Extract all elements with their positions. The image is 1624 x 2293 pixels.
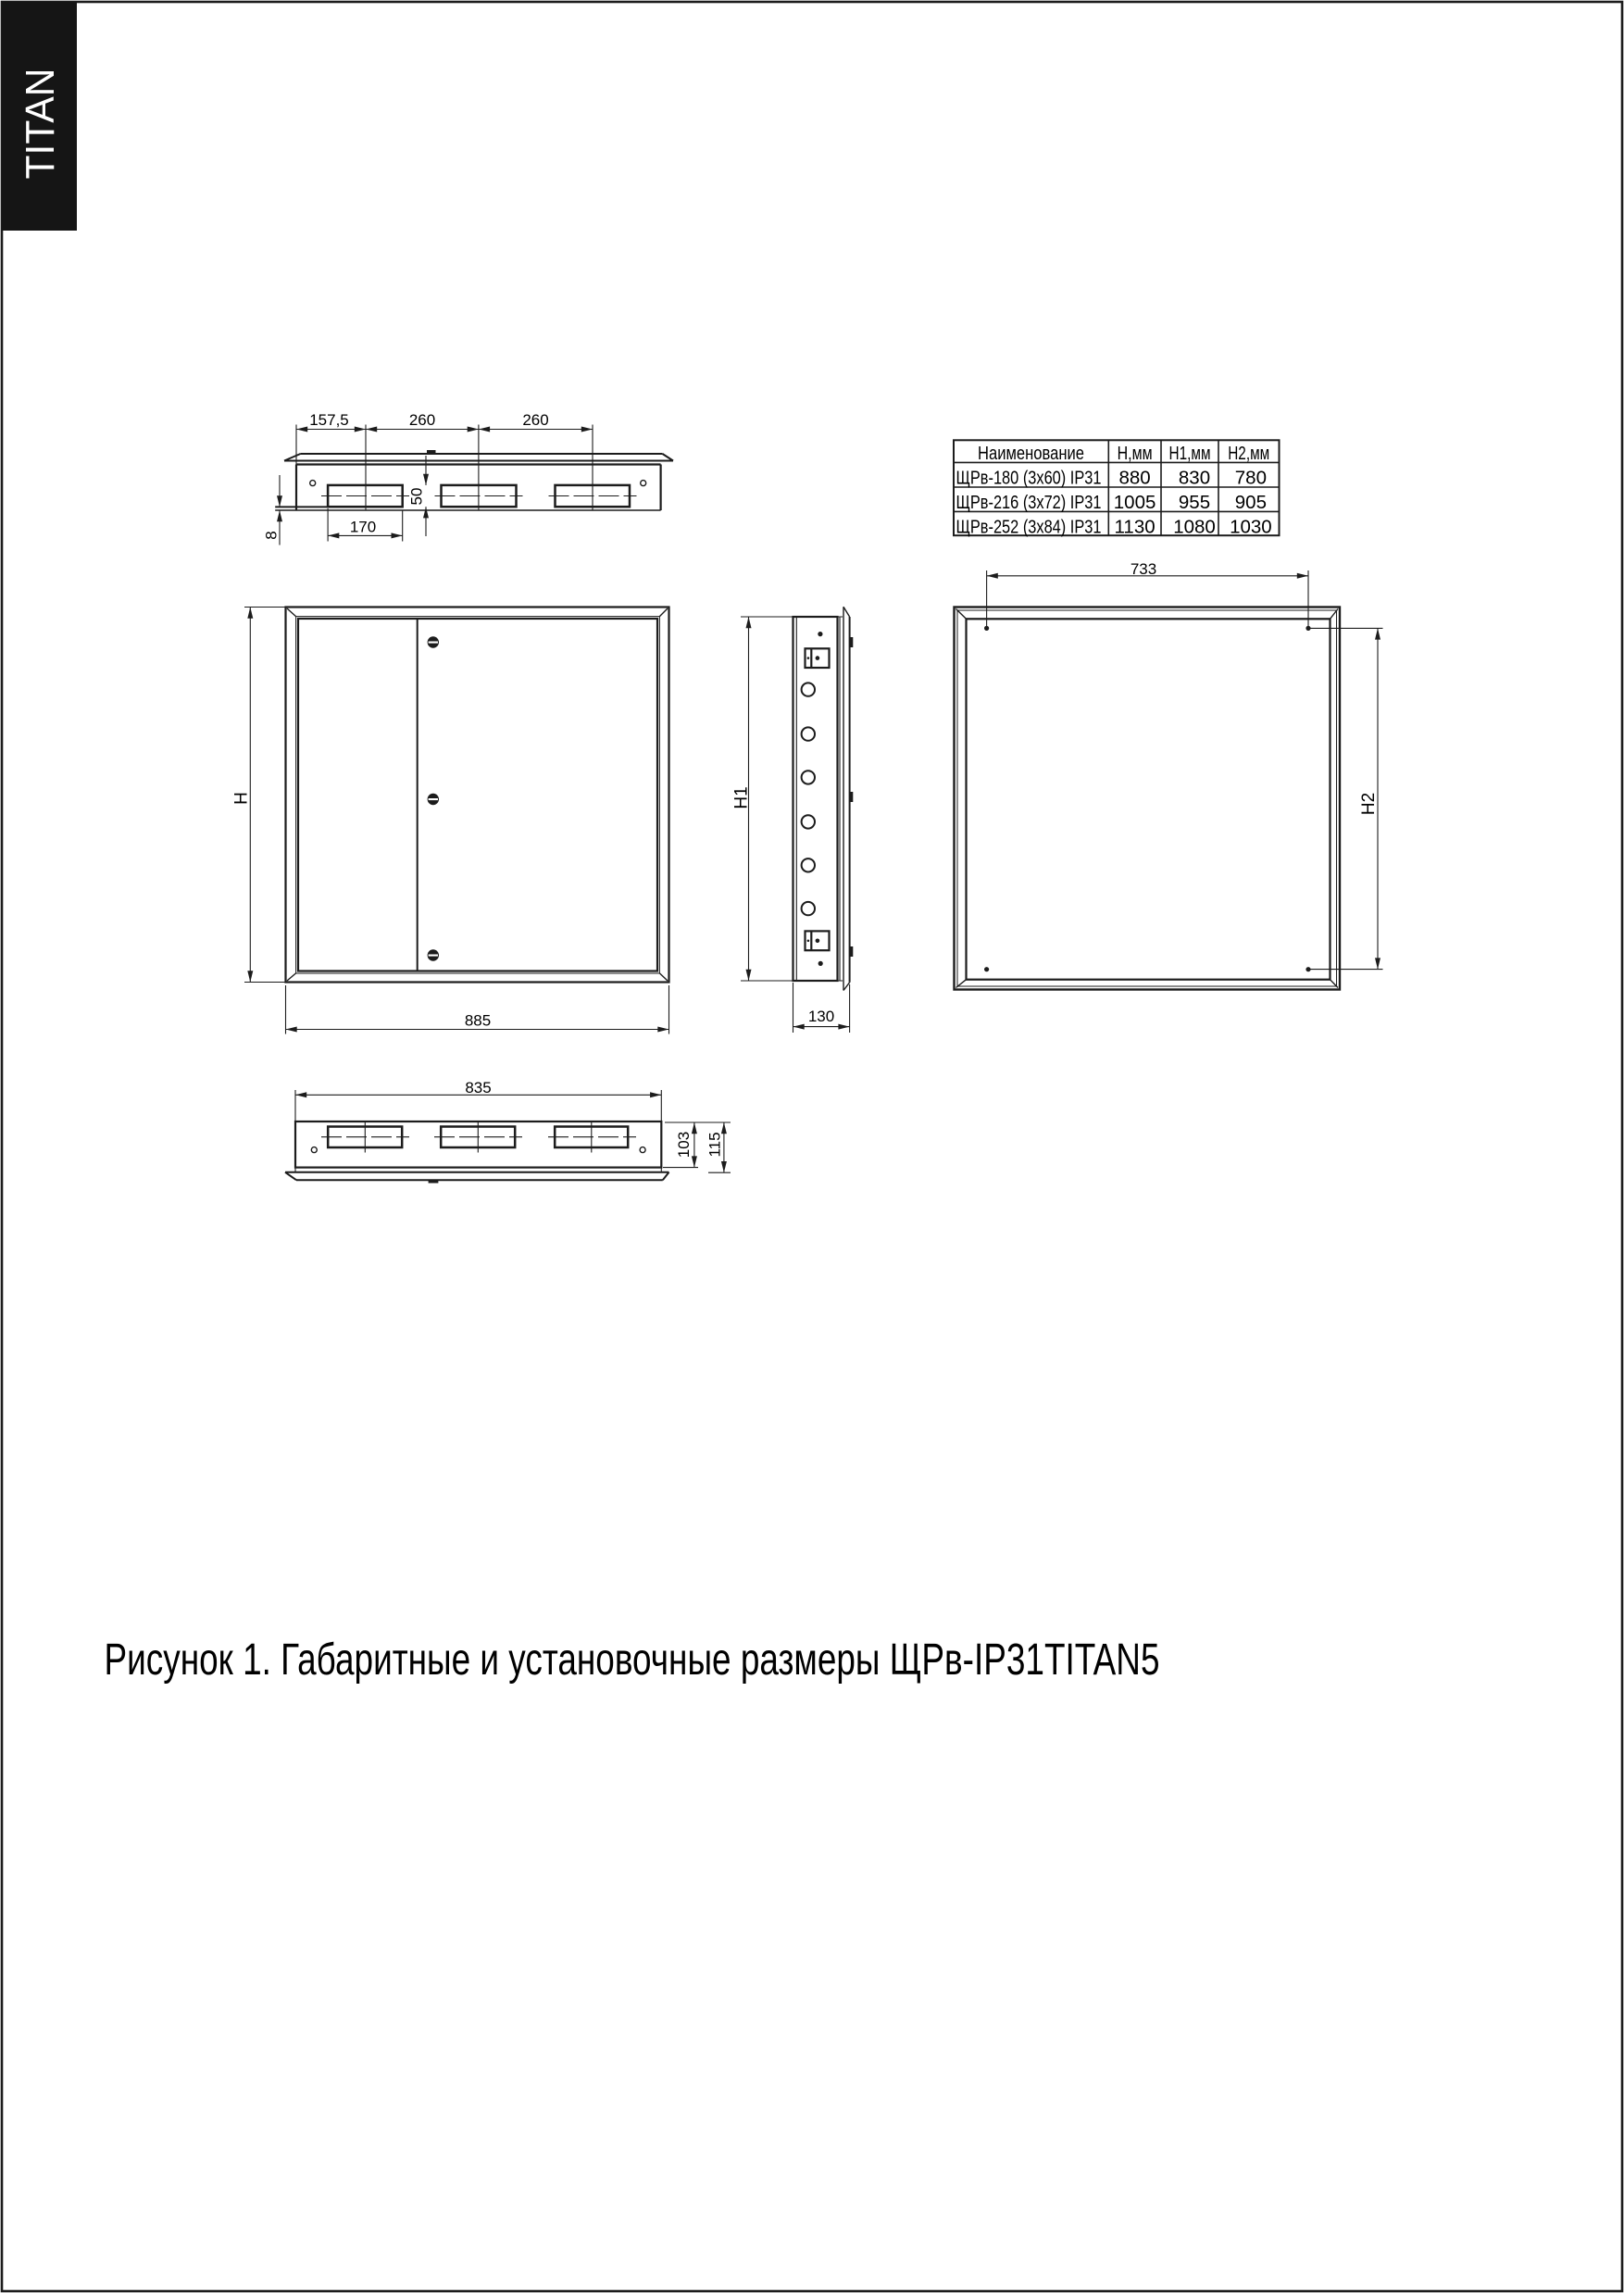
svg-text:830: 830 (1179, 468, 1210, 489)
svg-text:TITAN: TITAN (18, 69, 63, 180)
svg-text:H: H (232, 792, 252, 805)
svg-text:Н2,мм: Н2,мм (1228, 443, 1269, 464)
svg-text:H1: H1 (732, 786, 752, 808)
svg-text:ЩРв-180 (3х60) IP31: ЩРв-180 (3х60) IP31 (956, 468, 1102, 489)
svg-text:260: 260 (522, 411, 548, 429)
svg-text:780: 780 (1235, 468, 1267, 489)
svg-text:1005: 1005 (1114, 492, 1156, 513)
svg-text:1080: 1080 (1173, 516, 1216, 537)
svg-text:130: 130 (808, 1008, 834, 1025)
svg-text:835: 835 (465, 1079, 491, 1096)
svg-text:260: 260 (409, 411, 435, 429)
svg-text:1030: 1030 (1230, 516, 1272, 537)
svg-text:ЩРв-252 (3х84) IP31: ЩРв-252 (3х84) IP31 (956, 516, 1102, 537)
svg-text:Н1,мм: Н1,мм (1169, 443, 1211, 464)
svg-text:157,5: 157,5 (309, 411, 349, 429)
svg-text:H2: H2 (1359, 793, 1379, 815)
svg-text:905: 905 (1235, 492, 1267, 513)
svg-text:Н,мм: Н,мм (1118, 443, 1153, 464)
svg-text:880: 880 (1118, 468, 1150, 489)
svg-text:Рисунок 1. Габаритные и устано: Рисунок 1. Габаритные и установочные раз… (105, 1635, 1160, 1685)
svg-text:955: 955 (1179, 492, 1210, 513)
svg-text:115: 115 (706, 1132, 724, 1157)
svg-text:170: 170 (350, 519, 376, 536)
svg-text:1130: 1130 (1115, 516, 1156, 537)
svg-text:733: 733 (1131, 560, 1156, 578)
svg-text:ЩРв-216 (3х72) IP31: ЩРв-216 (3х72) IP31 (956, 492, 1102, 513)
svg-text:103: 103 (675, 1132, 693, 1158)
svg-text:8: 8 (263, 531, 281, 539)
svg-text:50: 50 (408, 488, 426, 506)
svg-text:885: 885 (465, 1012, 491, 1030)
svg-text:Наименование: Наименование (978, 443, 1084, 464)
